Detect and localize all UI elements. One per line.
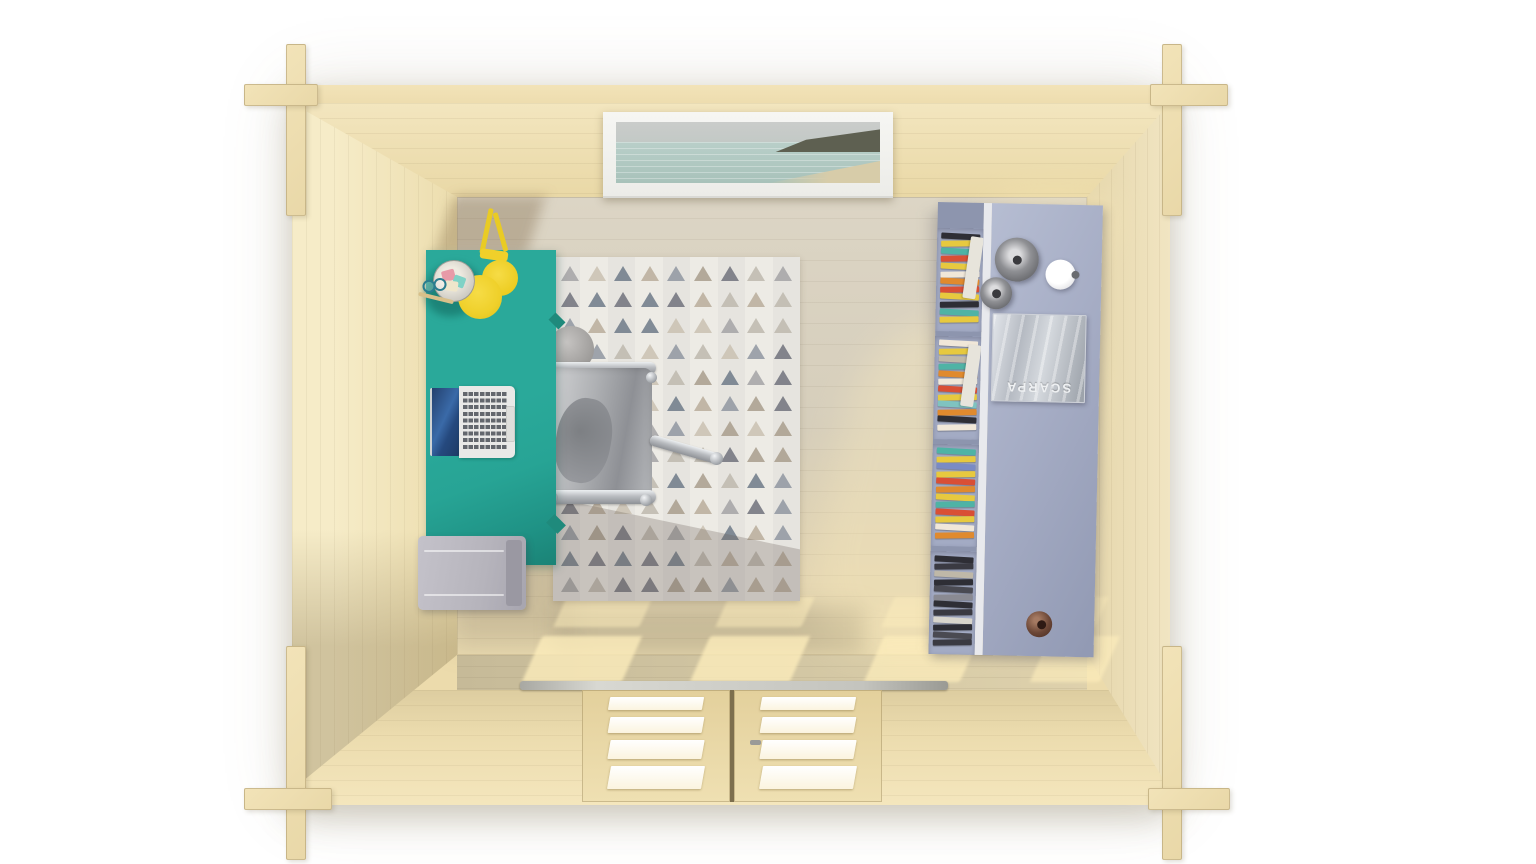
door-pane bbox=[760, 697, 856, 710]
rug-triangle bbox=[747, 525, 765, 540]
book-spine bbox=[932, 631, 971, 639]
rug-triangle bbox=[774, 525, 792, 540]
rug-triangle bbox=[774, 473, 792, 488]
rug-triangle bbox=[774, 499, 792, 514]
rug-triangle bbox=[721, 370, 739, 385]
rug-triangle bbox=[561, 266, 579, 281]
door-handle bbox=[750, 740, 761, 745]
door-threshold bbox=[520, 681, 948, 690]
rug-triangle bbox=[747, 266, 765, 281]
rug-triangle bbox=[747, 447, 765, 462]
bookshelf-unit: SCARPA bbox=[929, 202, 1103, 657]
rug-triangle bbox=[641, 292, 659, 307]
rug-triangle bbox=[721, 499, 739, 514]
window-frame bbox=[603, 112, 893, 198]
rug-triangle bbox=[747, 473, 765, 488]
book-spine bbox=[936, 456, 975, 463]
rug-triangle bbox=[774, 370, 792, 385]
book-spine bbox=[935, 532, 974, 539]
double-door bbox=[582, 690, 882, 802]
book-spine bbox=[934, 570, 973, 578]
corner-log bbox=[1148, 788, 1230, 810]
top-wall-edge bbox=[292, 85, 1170, 106]
rug-triangle bbox=[747, 344, 765, 359]
book-spine bbox=[933, 586, 972, 594]
door-pane bbox=[607, 740, 704, 759]
shelf-cell bbox=[935, 228, 983, 332]
rug-triangle bbox=[721, 318, 739, 333]
door-leaf-left bbox=[582, 690, 730, 802]
magazine-title: SCARPA bbox=[992, 379, 1084, 396]
rug-triangle bbox=[721, 266, 739, 281]
desk bbox=[426, 250, 556, 565]
door-pane bbox=[608, 717, 705, 733]
rug-triangle bbox=[588, 266, 606, 281]
book-spine bbox=[934, 555, 973, 563]
rug-triangle bbox=[667, 266, 685, 281]
drawer-unit bbox=[418, 536, 526, 610]
rug-triangle bbox=[774, 292, 792, 307]
book-spine bbox=[937, 416, 976, 424]
laptop-keyboard-deck bbox=[459, 386, 515, 458]
door-pane-column bbox=[609, 697, 703, 789]
drawer-seam bbox=[424, 550, 504, 552]
rug-triangle bbox=[774, 266, 792, 281]
rug-triangle bbox=[721, 292, 739, 307]
rug-triangle bbox=[747, 370, 765, 385]
rug-triangle bbox=[721, 473, 739, 488]
corner-log bbox=[1150, 84, 1228, 106]
book-spine bbox=[936, 447, 975, 455]
rug-triangle bbox=[694, 292, 712, 307]
door-pane bbox=[608, 697, 704, 710]
chair-joint bbox=[640, 494, 652, 506]
book-spine bbox=[935, 501, 974, 508]
shelf-cell bbox=[933, 336, 981, 440]
book-spine bbox=[933, 601, 972, 609]
shelf-cell bbox=[931, 443, 979, 547]
rug-triangle bbox=[641, 266, 659, 281]
chair-armrest-bar bbox=[542, 490, 656, 504]
book-spine bbox=[940, 301, 979, 308]
book-spine bbox=[933, 609, 972, 616]
rug-triangle bbox=[721, 344, 739, 359]
rug-triangle bbox=[588, 292, 606, 307]
laptop-screen bbox=[430, 388, 460, 456]
corner-log bbox=[244, 788, 332, 810]
chair-joint bbox=[710, 452, 723, 465]
door-pane-column bbox=[761, 697, 855, 789]
book-spine bbox=[937, 409, 976, 416]
book-spine bbox=[936, 463, 975, 471]
book-spine bbox=[933, 624, 972, 631]
floor-shadow bbox=[555, 605, 865, 655]
rug-triangle bbox=[694, 266, 712, 281]
rug-triangle bbox=[774, 396, 792, 411]
rug-triangle bbox=[747, 421, 765, 436]
book-spine bbox=[939, 308, 978, 316]
book-spine bbox=[934, 564, 973, 571]
corner-log bbox=[286, 44, 306, 216]
book-spine bbox=[937, 424, 976, 431]
door-pane bbox=[759, 766, 857, 789]
book-spine bbox=[936, 486, 975, 493]
window-sea-view bbox=[616, 122, 880, 183]
rug-triangle bbox=[747, 499, 765, 514]
drawer-side-panel bbox=[506, 540, 522, 606]
door-pane bbox=[607, 766, 705, 789]
book-spine bbox=[939, 316, 978, 323]
laptop-trackpad bbox=[506, 406, 515, 442]
rug-triangle bbox=[774, 421, 792, 436]
chair-backrest bbox=[548, 368, 652, 502]
book-spine bbox=[933, 594, 972, 601]
drawer-seam bbox=[424, 594, 504, 596]
book-spine bbox=[936, 471, 975, 478]
office-chair bbox=[538, 316, 723, 512]
book-spine bbox=[935, 517, 974, 524]
book-spine bbox=[936, 478, 975, 486]
door-pane bbox=[760, 717, 857, 733]
corner-log bbox=[286, 646, 306, 860]
rug-triangle bbox=[721, 396, 739, 411]
magazine: SCARPA bbox=[991, 313, 1087, 403]
rug-triangle bbox=[614, 292, 632, 307]
rug-triangle bbox=[747, 396, 765, 411]
rug-triangle bbox=[721, 421, 739, 436]
rug-triangle bbox=[667, 292, 685, 307]
rug-triangle bbox=[614, 266, 632, 281]
book-spine bbox=[935, 523, 974, 531]
door-leaf-right bbox=[734, 690, 882, 802]
book-spine bbox=[933, 616, 972, 624]
book-spine bbox=[935, 508, 974, 516]
rug-triangle bbox=[747, 292, 765, 307]
chair-joint bbox=[646, 372, 657, 383]
book-spine bbox=[935, 493, 974, 501]
rug-triangle bbox=[774, 318, 792, 333]
laptop-keys bbox=[463, 392, 507, 450]
shelf-cell bbox=[929, 551, 977, 655]
rug-triangle bbox=[774, 447, 792, 462]
corner-log bbox=[1162, 646, 1182, 860]
corner-log bbox=[1162, 44, 1182, 216]
book-spine bbox=[934, 579, 973, 586]
rug-triangle bbox=[721, 447, 739, 462]
door-pane bbox=[759, 740, 856, 759]
rug-triangle bbox=[561, 292, 579, 307]
book-spine bbox=[932, 639, 971, 646]
cabin-topdown-render: SCARPA bbox=[0, 0, 1536, 864]
corner-log bbox=[244, 84, 318, 106]
rug-triangle bbox=[774, 344, 792, 359]
shelf-books-column bbox=[929, 202, 984, 655]
rug-triangle bbox=[747, 318, 765, 333]
laptop bbox=[430, 384, 540, 460]
